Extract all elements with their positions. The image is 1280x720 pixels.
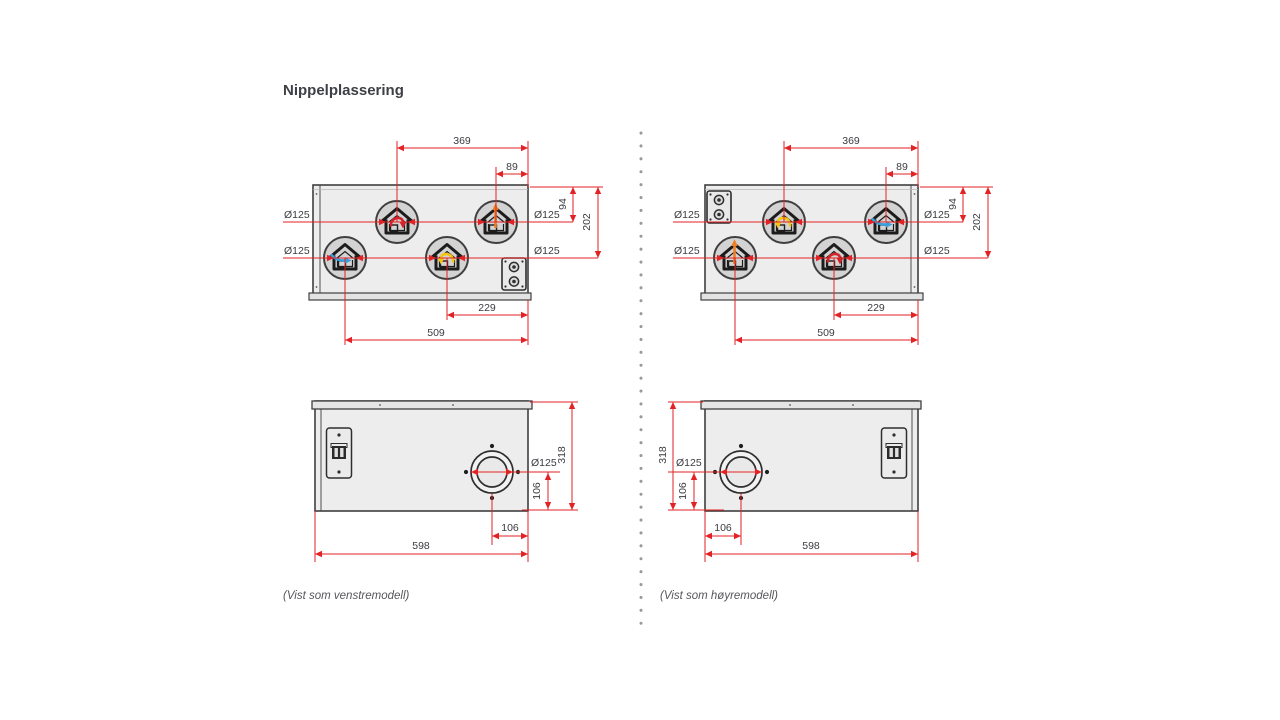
dim-318-label: 318 <box>556 446 568 464</box>
dim-dia125-label: Ø125 <box>531 457 557 469</box>
dim-318-label: 318 <box>657 446 669 464</box>
dim-509-label: 509 <box>427 327 445 339</box>
dim-106-label: 106 <box>531 482 543 500</box>
dim-dia125-label: Ø125 <box>924 245 950 257</box>
dim-dia125-label: Ø125 <box>674 209 700 221</box>
dim-106-label: 106 <box>501 522 519 534</box>
top-view-right-model: 369 89 94 202 Ø125 Ø125 Ø125 Ø125 229 50… <box>673 135 993 345</box>
dim-106-label: 106 <box>714 522 732 534</box>
page: Nippelplassering (Vist som venstremodell… <box>0 0 1280 720</box>
dim-89-label: 89 <box>896 161 908 173</box>
technical-drawing-canvas: 369 89 94 202 Ø125 Ø125 Ø125 Ø125 229 50… <box>0 0 1280 720</box>
dim-202-label: 202 <box>581 213 593 231</box>
dim-598-label: 598 <box>802 540 820 552</box>
gland-plate-icon <box>502 258 526 290</box>
dim-509-label: 509 <box>817 327 835 339</box>
dim-369-label: 369 <box>453 135 471 147</box>
dim-dia125-label: Ø125 <box>676 457 702 469</box>
dim-106-label: 106 <box>677 482 689 500</box>
dim-dia125-label: Ø125 <box>534 209 560 221</box>
dim-229-label: 229 <box>867 302 885 314</box>
top-view-left-model: 369 89 94 202 Ø125 Ø125 Ø125 Ø125 229 50… <box>283 135 603 345</box>
door-latch-icon <box>327 428 352 478</box>
front-view-left-model: 318 Ø125 106 106 598 <box>312 401 578 562</box>
dim-dia125-label: Ø125 <box>674 245 700 257</box>
dim-202-label: 202 <box>971 213 983 231</box>
dim-369-label: 369 <box>842 135 860 147</box>
front-view-right-model: 318 Ø125 106 106 598 <box>657 401 921 562</box>
dim-598-label: 598 <box>412 540 430 552</box>
dim-dia125-label: Ø125 <box>284 245 310 257</box>
dim-dia125-label: Ø125 <box>924 209 950 221</box>
dim-dia125-label: Ø125 <box>534 245 560 257</box>
door-latch-icon <box>882 428 907 478</box>
dim-229-label: 229 <box>478 302 496 314</box>
gland-plate-icon <box>707 191 731 223</box>
dim-89-label: 89 <box>506 161 518 173</box>
dim-dia125-label: Ø125 <box>284 209 310 221</box>
